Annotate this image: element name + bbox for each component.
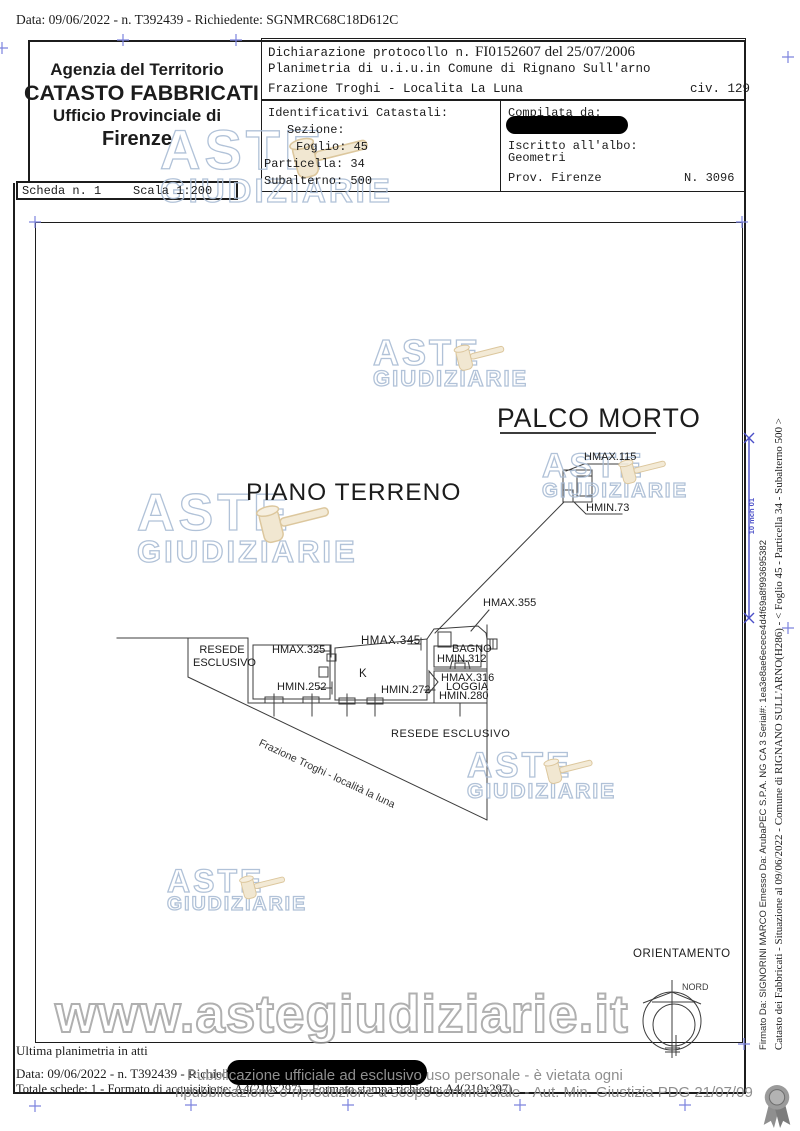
cadastral-foglio: Foglio: 45 bbox=[296, 140, 368, 154]
label-resede-left: RESEDE ESCLUSIVO bbox=[193, 644, 251, 670]
cadastral-subalterno: Subalterno: 500 bbox=[264, 174, 372, 188]
north-label: NORD bbox=[682, 982, 709, 992]
sidebar-cadastral-line: Catasto dei Fabbricati - Situazione al 0… bbox=[773, 418, 785, 1050]
label-hmax355: HMAX.355 bbox=[483, 597, 536, 609]
cadastral-sezione: Sezione: bbox=[287, 123, 345, 137]
declaration-civ: civ. 129 bbox=[690, 82, 750, 96]
sheet-number: Scheda n. 1 bbox=[22, 184, 101, 198]
label-hmin280: HMIN.280 bbox=[439, 690, 489, 702]
declaration-frazione: Frazione Troghi - Localita La Luna bbox=[268, 82, 523, 96]
declaration-planimetria: Planimetria di u.i.u.in Comune di Rignan… bbox=[268, 62, 651, 76]
sidebar-signature-line: Firmato Da: SIGNORINI MARCO Emesso Da: A… bbox=[758, 540, 769, 1050]
label-hmin312: HMIN.312 bbox=[437, 653, 487, 665]
palco-morto-title: PALCO MORTO bbox=[497, 403, 701, 434]
request-line: Data: 09/06/2022 - n. T392439 - Richiede… bbox=[16, 12, 398, 28]
cadastral-plan-document: Data: 09/06/2022 - n. T392439 - Richiede… bbox=[0, 0, 800, 1131]
agency-city: Firenze bbox=[24, 128, 250, 151]
orientation-title: ORIENTAMENTO bbox=[633, 948, 731, 960]
disclaimer-line2: ripubblicazione o riproduzione a scopo c… bbox=[175, 1084, 753, 1101]
label-hmax345: HMAX.345 bbox=[361, 635, 421, 647]
agency-name: Agenzia del Territorio bbox=[24, 60, 250, 80]
footer-ultima: Ultima planimetria in atti bbox=[16, 1043, 148, 1059]
agency-provincial: Ufficio Provinciale di bbox=[24, 106, 250, 126]
compiler-albo-line2: Geometri bbox=[508, 151, 566, 165]
cadastral-particella: Particella: 34 bbox=[264, 157, 365, 171]
label-resede-right: RESEDE ESCLUSIVO bbox=[391, 728, 510, 740]
label-hmin252: HMIN.252 bbox=[277, 681, 327, 693]
agency-office: CATASTO FABBRICATI bbox=[24, 81, 250, 106]
compiler-redaction-bar bbox=[506, 116, 628, 134]
declaration-protocol-label: Dichiarazione protocollo n. bbox=[268, 46, 471, 60]
label-k: K bbox=[359, 668, 367, 680]
declaration-protocol: Dichiarazione protocollo n. FI0152607 de… bbox=[268, 43, 635, 61]
declaration-protocol-value: FI0152607 del 25/07/2006 bbox=[475, 44, 635, 60]
label-hmin272: HMIN.272 bbox=[381, 684, 431, 696]
resede-left-line1: RESEDE bbox=[193, 644, 251, 657]
label-hmin73: HMIN.73 bbox=[586, 502, 629, 514]
resede-left-line2: ESCLUSIVO bbox=[193, 657, 251, 670]
disclaimer-line1: Pubblicazione ufficiale ad esclusivo uso… bbox=[187, 1067, 623, 1084]
sheet-scale: Scala 1:200 bbox=[133, 184, 212, 198]
compiler-number: N. 3096 bbox=[684, 171, 734, 185]
cadastral-title: Identificativi Catastali: bbox=[268, 106, 448, 120]
label-hmax325: HMAX.325 bbox=[272, 644, 325, 656]
outer-frame-right bbox=[744, 40, 746, 1094]
piano-terreno-title: PIANO TERRENO bbox=[246, 479, 461, 507]
award-ribbon-icon bbox=[760, 1084, 794, 1129]
compiler-prov: Prov. Firenze bbox=[508, 171, 602, 185]
label-hmax115: HMAX.115 bbox=[584, 451, 636, 463]
drawing-area-frame bbox=[35, 222, 743, 1043]
outer-frame-left-lower bbox=[13, 183, 15, 1094]
sidebar-blue-mark: 10 mch 01 bbox=[747, 498, 756, 534]
